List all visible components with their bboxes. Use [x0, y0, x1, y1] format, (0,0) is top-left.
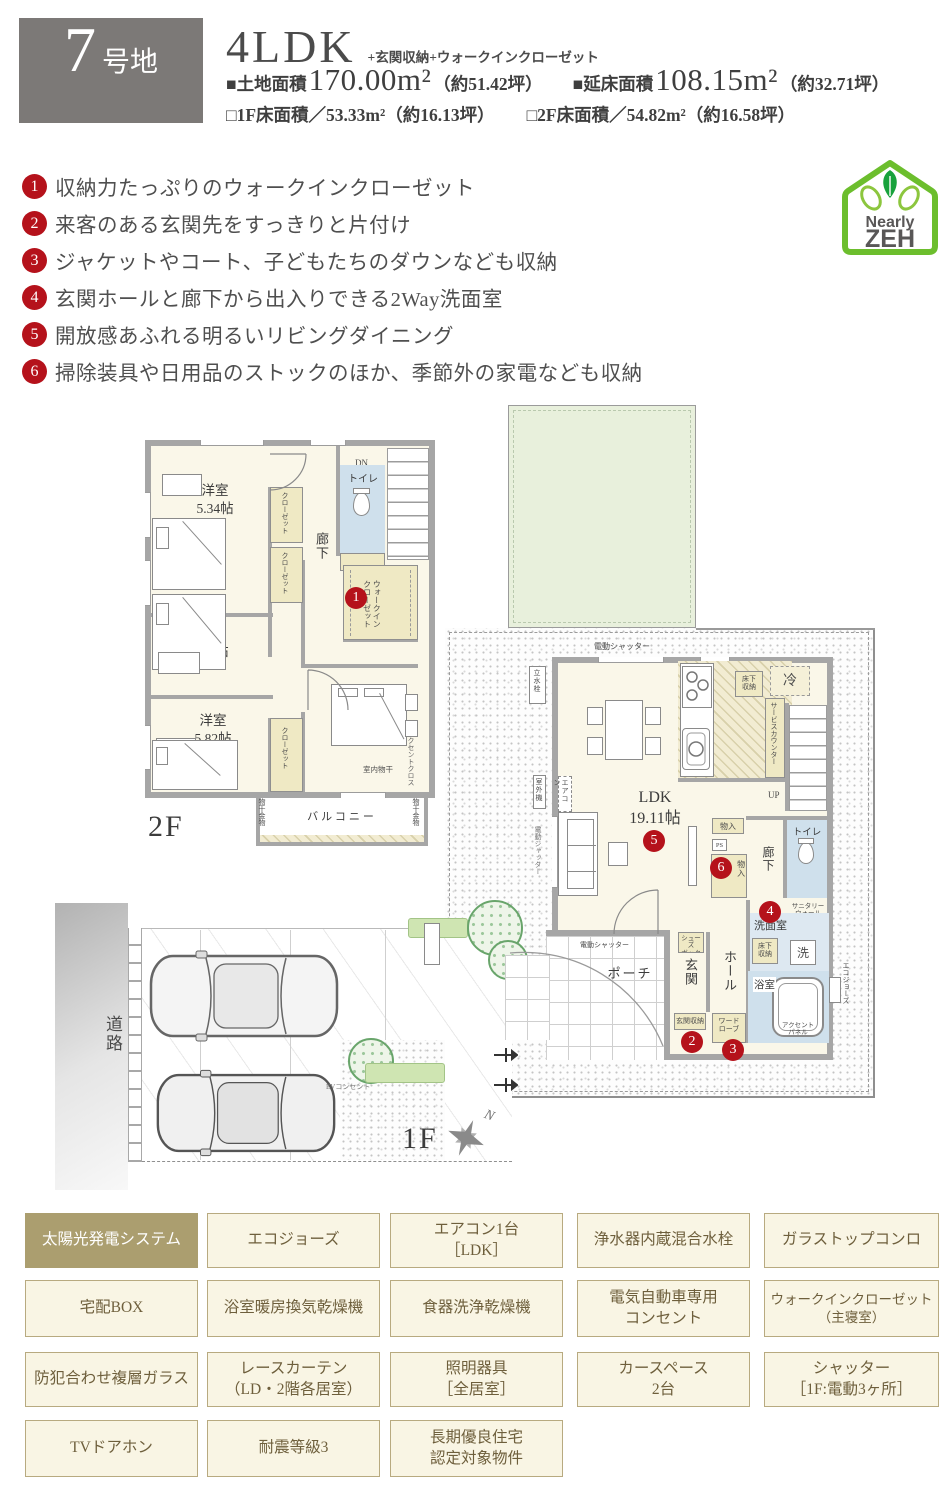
- door-arc: [612, 888, 660, 941]
- approach-arc: [498, 928, 673, 1058]
- f1-area: □1F床面積／53.33m²（約16.13坪）: [226, 102, 495, 127]
- feature-text-1: 収納力たっぷりのウォークインクローゼット: [55, 171, 475, 201]
- interior-wall: [746, 816, 831, 820]
- toilet-icon: [353, 492, 370, 516]
- feature-item: 3 ジャケットやコート、子どもたちのダウンなども収納: [22, 245, 558, 275]
- tag-seismic-grade: 耐震等級3: [207, 1420, 380, 1477]
- entrance-label: 玄関: [681, 958, 700, 986]
- car-top-view: [155, 1066, 337, 1165]
- nearly-zeh-badge: Nearly ZEH: [842, 158, 938, 258]
- ps-label: PS: [712, 839, 727, 851]
- indoor-drying-label: 室内物干: [363, 766, 393, 775]
- car-top-view: [148, 950, 340, 1047]
- compass-north-label: N: [481, 1106, 497, 1124]
- flyer-page: 7 号地 4LDK +玄関収納+ウォークインクローゼット ■土地面積 170.0…: [0, 0, 950, 1498]
- land-area-label: ■土地面積: [226, 71, 307, 96]
- feature-badge-3: 3: [22, 248, 47, 273]
- feature-text-5: 開放感あふれる明るいリビングダイニング: [55, 319, 454, 349]
- feature-badge-5: 5: [22, 322, 47, 347]
- chair: [645, 737, 661, 755]
- feature-badge-1: 1: [22, 174, 47, 199]
- storage-top-label: 物入: [712, 818, 744, 834]
- garden-area: [508, 405, 696, 628]
- feature-text-6: 掃除装具や日用品のストックのほか、季節外の家電なども収納: [55, 356, 643, 386]
- underfloor-storage-2-label: 床下 収納: [752, 938, 778, 964]
- balcony-hatch: [260, 835, 424, 842]
- chair: [587, 737, 603, 755]
- storage-6-label: 物入: [736, 860, 746, 878]
- balcony: バルコニー: [256, 798, 428, 846]
- toilet-tank-icon: [798, 838, 814, 844]
- ev-outlet-label: EVコンセント: [326, 1083, 370, 1091]
- shutter-top-label: 電動シャッター: [594, 642, 650, 652]
- underfloor-storage-label: 床下 収納: [735, 671, 763, 697]
- land-area-tsubo: （約51.42坪）: [433, 71, 542, 96]
- tag-dishwasher: 食器洗浄乾燥機: [390, 1280, 563, 1337]
- planter-box: [424, 923, 440, 965]
- lot-number: 7: [64, 18, 96, 82]
- shutter-left-label: 電動シャッター: [534, 826, 542, 875]
- floor2-label: 2F: [148, 810, 184, 844]
- plan-badge-4: 4: [759, 901, 781, 923]
- interior-wall: [145, 695, 273, 699]
- entrance-storage-label: 玄関収納: [674, 1013, 706, 1030]
- sink-icon: [682, 728, 710, 770]
- tag-lace-curtain: レースカーテン （LD・2階各居室）: [207, 1352, 380, 1407]
- nightstand: [405, 720, 418, 737]
- chair: [587, 707, 603, 725]
- closet: クローゼット: [270, 718, 303, 792]
- door-arc: [268, 452, 308, 497]
- garden-faucet-icon: [492, 1076, 518, 1099]
- tag-tv-doorphone: TVドアホン: [25, 1420, 198, 1477]
- feature-item: 1 収納力たっぷりのウォークインクローゼット: [22, 171, 475, 201]
- feature-item: 6 掃除装具や日用品のストックのほか、季節外の家電なども収納: [22, 356, 643, 386]
- feature-badge-4: 4: [22, 285, 47, 310]
- outdoor-unit-label: 室外機: [533, 775, 546, 809]
- garden-inner-line: [513, 410, 691, 623]
- water-heater-unit: [829, 977, 841, 1003]
- toilet-2f-label: トイレ: [342, 470, 384, 485]
- feature-text-4: 玄関ホールと廊下から出入りできる2Way洗面室: [55, 282, 503, 312]
- window-opening: [598, 657, 664, 663]
- nightstand: [405, 694, 418, 711]
- total-area-value: 108.15m²: [655, 62, 778, 98]
- bed: [152, 518, 226, 590]
- total-area-label: ■延床面積: [573, 71, 654, 96]
- tag-security-glass: 防犯合わせ複層ガラス: [25, 1352, 198, 1407]
- interior-wall: [706, 932, 710, 1012]
- tag-long-term-housing: 長期優良住宅 認定対象物件: [390, 1420, 563, 1477]
- bed: [152, 740, 238, 790]
- lot-number-box: 7 号地: [19, 18, 203, 123]
- tag-glass-top-stove: ガラストップコンロ: [764, 1213, 939, 1268]
- stove-icon: [682, 666, 712, 708]
- fridge-label: 冷: [770, 666, 810, 696]
- accent-cloth-label: アクセントクロス: [407, 730, 415, 786]
- coffee-table: [608, 842, 628, 866]
- interior-wall: [785, 703, 789, 811]
- feature-item: 4 玄関ホールと廊下から出入りできる2Way洗面室: [22, 282, 503, 312]
- interior-wall: [678, 778, 792, 782]
- feature-text-2: 来客のある玄関先をすっきりと片付け: [55, 208, 411, 238]
- bath-label: 浴室: [753, 977, 776, 992]
- shoe-box-label: シューズ ボックス: [678, 932, 704, 953]
- area-line: ■土地面積 170.00m² （約51.42坪） ■延床面積 108.15m² …: [226, 62, 889, 98]
- tag-lighting: 照明器具 ［全居室］: [390, 1352, 563, 1407]
- hedge: [365, 1063, 445, 1083]
- window-opening: [310, 440, 346, 446]
- toilet-tank-icon: [353, 488, 370, 494]
- service-counter-label: サービスカウンター: [765, 698, 785, 778]
- road-label: 道路: [100, 1015, 125, 1053]
- floor-area-line: □1F床面積／53.33m²（約16.13坪） □2F床面積／54.82m²（約…: [226, 102, 795, 127]
- plan-badge-5: 5: [643, 830, 665, 852]
- toilet-icon: [798, 842, 814, 864]
- total-area-tsubo: （約32.71坪）: [780, 71, 889, 96]
- closet: クローゼット: [270, 547, 303, 603]
- f2-area: □2F床面積／54.82m²（約16.58坪）: [527, 102, 796, 127]
- feature-badge-2: 2: [22, 211, 47, 236]
- hallway-1f-label: 廊下: [760, 846, 777, 872]
- sofa: [558, 812, 598, 896]
- feature-text-3: ジャケットやコート、子どもたちのダウンなども収納: [55, 245, 558, 275]
- washer-label: 洗: [790, 940, 816, 965]
- toilet-1f-label: トイレ: [789, 824, 825, 838]
- hanger-label: 物干金物: [258, 798, 266, 826]
- tag-bath-dryer: 浴室暖房換気乾燥機: [207, 1280, 380, 1337]
- plan-badge-2: 2: [681, 1031, 703, 1053]
- tap-label: 立水栓: [529, 666, 546, 704]
- entrance-hall-label: ホール: [720, 950, 739, 992]
- feature-item: 2 来客のある玄関先をすっきりと片付け: [22, 208, 411, 238]
- desk: [162, 474, 202, 496]
- window-opening: [145, 560, 151, 606]
- stairs-1f: [789, 705, 827, 811]
- ldk-label: LDK 19.11帖: [600, 788, 710, 830]
- stairs-2f: [387, 448, 429, 560]
- hallway-2f-label: 廊下: [312, 532, 331, 560]
- plan-badge-1: 1: [345, 587, 367, 609]
- tag-wic: ウォークインクローゼット （主寝室）: [764, 1280, 939, 1337]
- tag-car-space: カースペース 2台: [577, 1352, 750, 1407]
- ecojozu-label: エコジョーズ: [842, 962, 850, 1004]
- tag-water-purifier: 浄水器内蔵混合水栓: [577, 1213, 750, 1268]
- tv-board: [688, 826, 697, 886]
- stairs-up-label: UP: [768, 790, 780, 801]
- boundary-segment: [696, 628, 875, 630]
- plan-badge-6: 6: [710, 857, 732, 879]
- feature-item: 5 開放感あふれる明るいリビングダイニング: [22, 319, 454, 349]
- zeh-zeh-text: ZEH: [865, 225, 915, 253]
- desk: [158, 652, 200, 674]
- chair: [645, 707, 661, 725]
- balcony-label: バルコニー: [290, 808, 394, 824]
- door-arc: [306, 668, 350, 717]
- window-opening: [145, 725, 151, 770]
- aircon-label: エアコン: [558, 776, 572, 812]
- zeh-house-icon: Nearly ZEH: [842, 158, 938, 258]
- tag-aircon: エアコン1台 ［LDK］: [390, 1213, 563, 1268]
- tag-shutter: シャッター ［1F:電動3ヶ所］: [764, 1352, 939, 1407]
- tag-solar: 太陽光発電システム: [25, 1213, 198, 1268]
- interior-wall: [783, 820, 787, 898]
- curb-blocks: [128, 928, 142, 1162]
- window-opening: [145, 492, 151, 538]
- accent-panel-label: アクセント パネル: [776, 1022, 820, 1037]
- hanger-label: 物干金物: [412, 798, 420, 826]
- tag-delivery-box: 宅配BOX: [25, 1280, 198, 1337]
- plan-badge-3: 3: [722, 1039, 744, 1061]
- feature-badge-6: 6: [22, 359, 47, 384]
- tag-ev-outlet: 電気自動車専用 コンセント: [577, 1280, 750, 1337]
- dining-table: [605, 700, 643, 760]
- window-opening: [200, 440, 264, 446]
- tag-ecojozu: エコジョーズ: [207, 1213, 380, 1268]
- land-area-value: 170.00m²: [309, 62, 432, 98]
- lot-suffix: 号地: [102, 40, 158, 80]
